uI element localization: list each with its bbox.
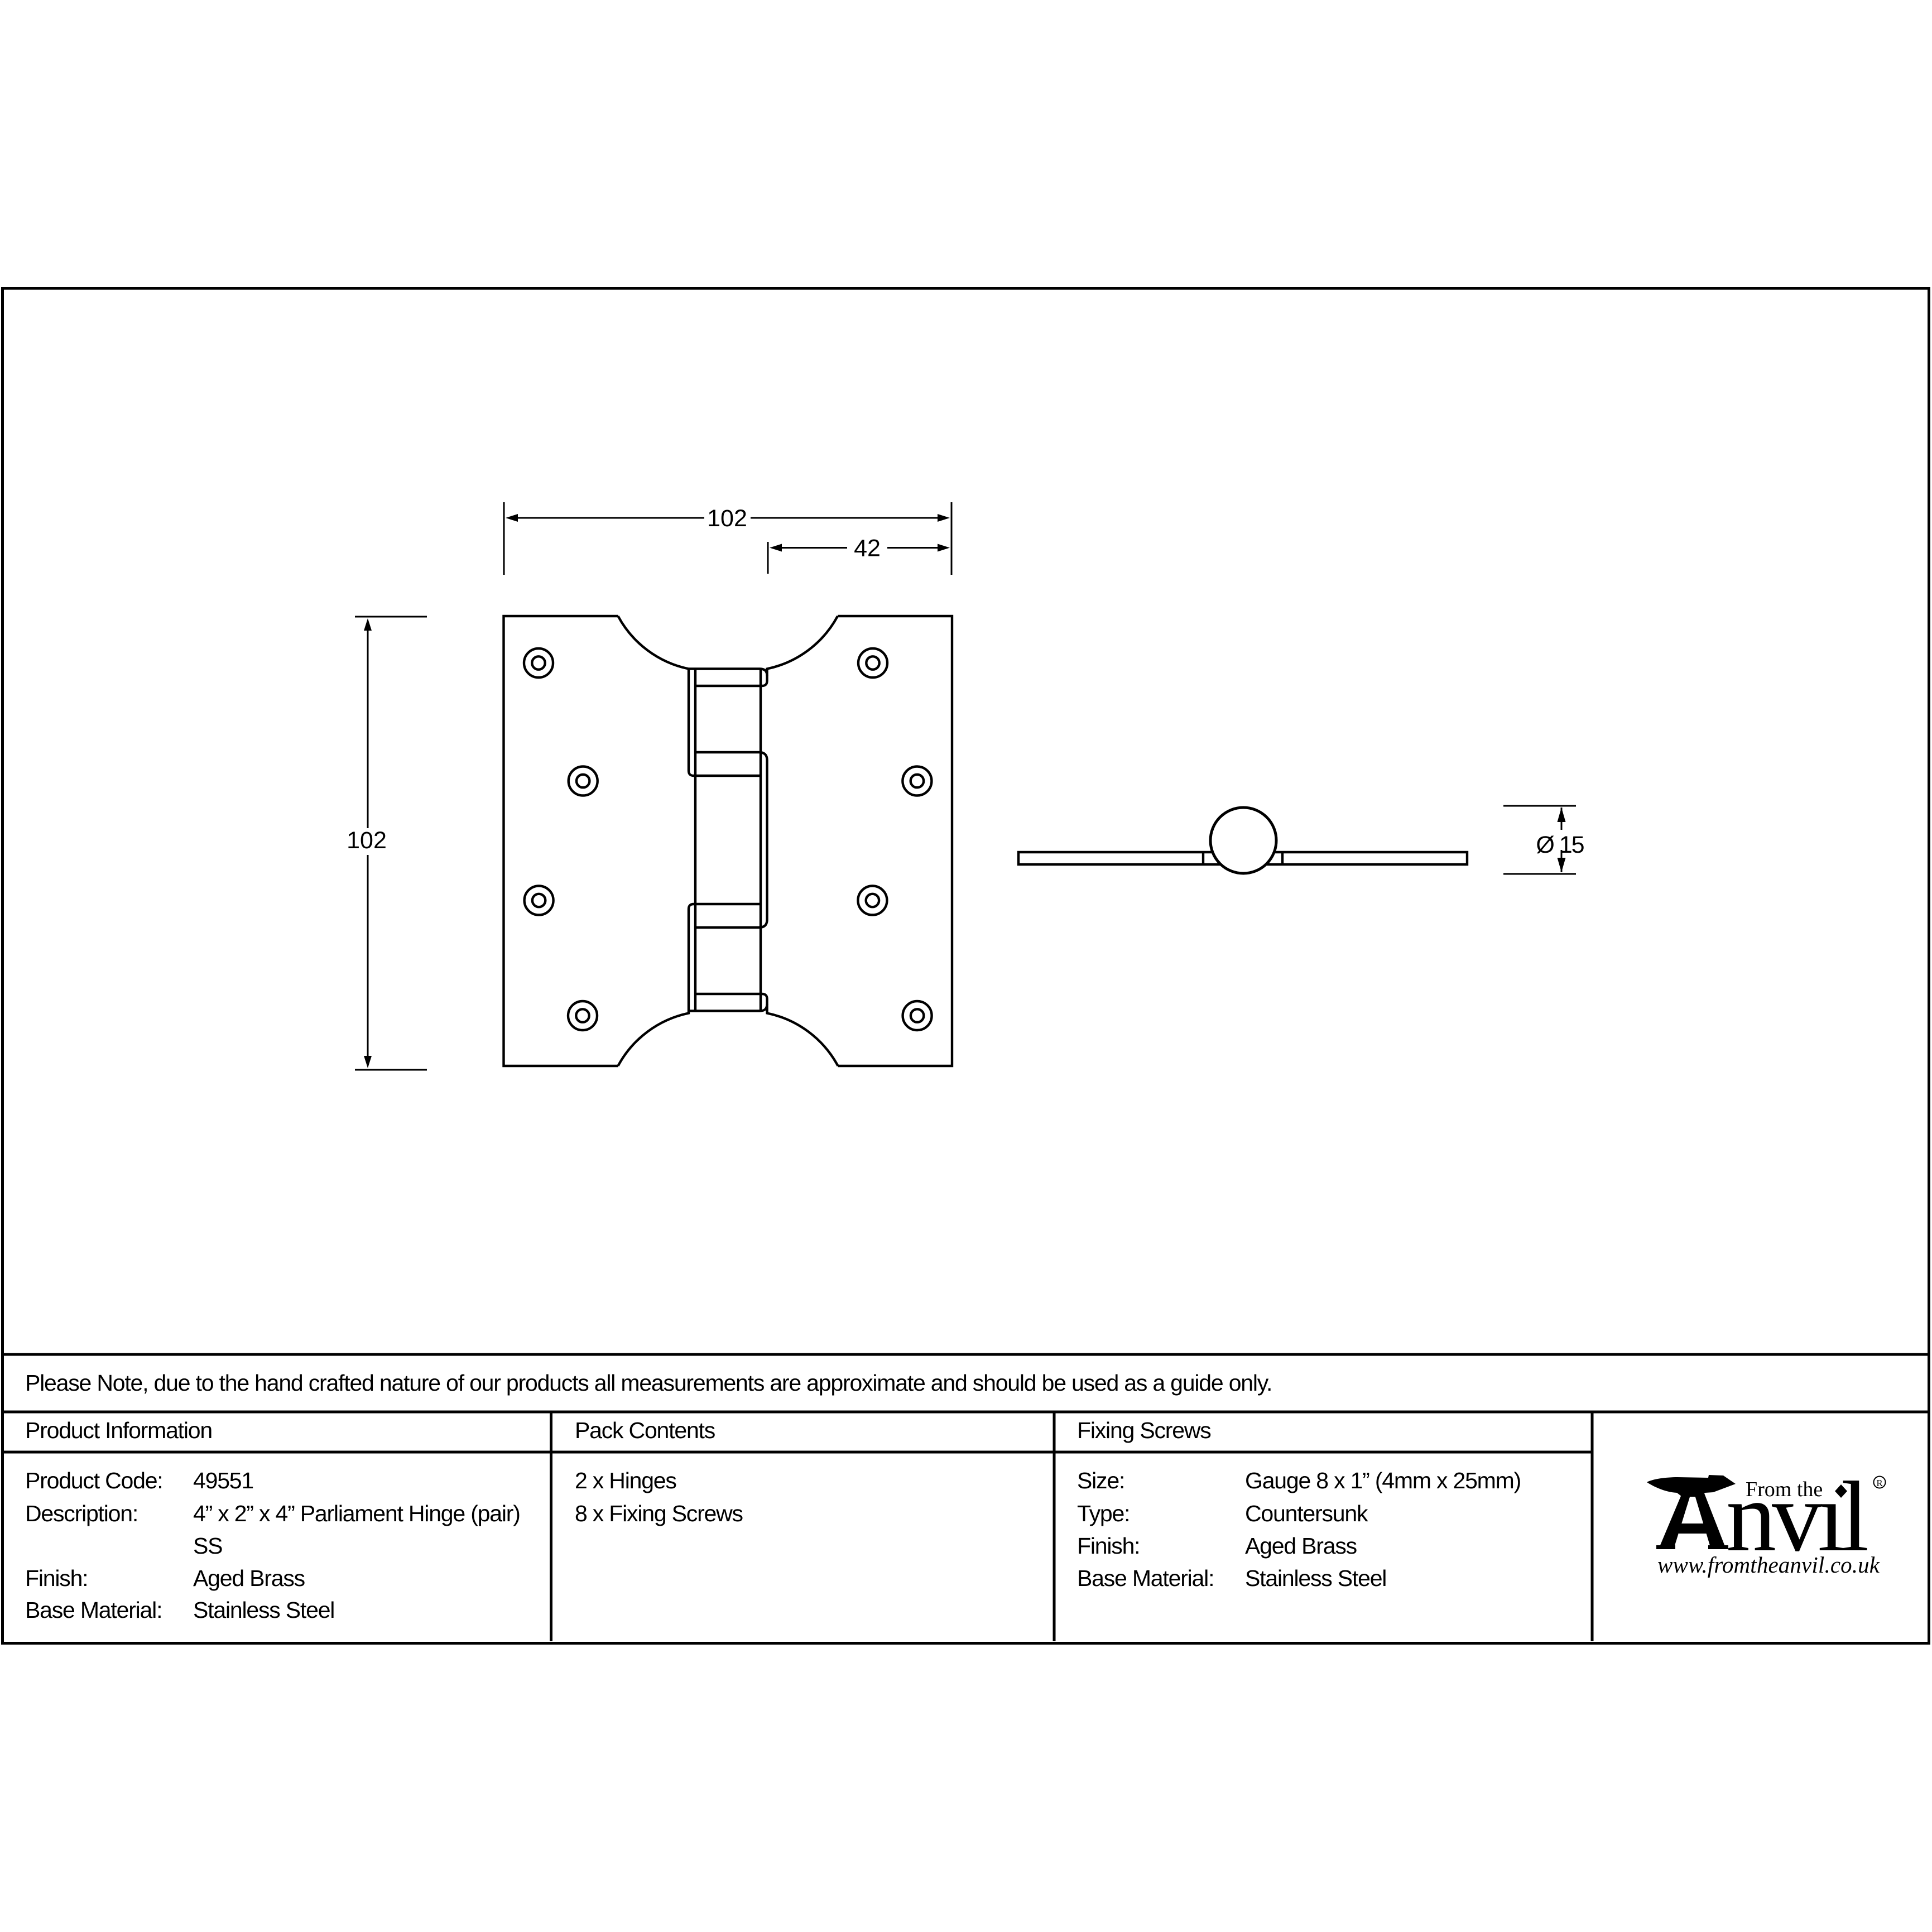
- svg-text:Description:: Description:: [25, 1501, 138, 1526]
- svg-text:Pack Contents: Pack Contents: [575, 1417, 715, 1443]
- svg-text:www.fromtheanvil.co.uk: www.fromtheanvil.co.uk: [1657, 1552, 1880, 1578]
- svg-text:Base Material:: Base Material:: [25, 1597, 162, 1623]
- svg-text:Finish:: Finish:: [1077, 1533, 1140, 1559]
- svg-text:SS: SS: [193, 1533, 222, 1559]
- svg-text:Product Code:: Product Code:: [25, 1468, 163, 1493]
- svg-text:Countersunk: Countersunk: [1245, 1501, 1368, 1526]
- svg-text:49551: 49551: [193, 1468, 253, 1493]
- svg-text:102: 102: [707, 505, 747, 532]
- svg-text:Gauge 8 x 1” (4mm x 25mm): Gauge 8 x 1” (4mm x 25mm): [1245, 1468, 1521, 1493]
- svg-text:Stainless Steel: Stainless Steel: [193, 1597, 334, 1623]
- svg-text:8 x Fixing Screws: 8 x Fixing Screws: [575, 1501, 743, 1526]
- svg-text:42: 42: [854, 535, 881, 562]
- svg-text:Ø 15: Ø 15: [1536, 832, 1584, 858]
- svg-text:Aged Brass: Aged Brass: [1245, 1533, 1357, 1559]
- svg-text:2 x Hinges: 2 x Hinges: [575, 1468, 676, 1493]
- svg-text:Stainless Steel: Stainless Steel: [1245, 1565, 1386, 1591]
- svg-text:Product Information: Product Information: [25, 1417, 212, 1443]
- svg-text:Fixing Screws: Fixing Screws: [1077, 1417, 1211, 1443]
- svg-text:Aged Brass: Aged Brass: [193, 1565, 305, 1591]
- svg-text:Finish:: Finish:: [25, 1565, 88, 1591]
- svg-text:4” x 2” x 4” Parliament Hinge: 4” x 2” x 4” Parliament Hinge (pair): [193, 1501, 520, 1526]
- svg-text:102: 102: [347, 827, 387, 854]
- svg-text:Type:: Type:: [1077, 1501, 1130, 1526]
- svg-text:Size:: Size:: [1077, 1468, 1124, 1493]
- svg-text:R: R: [1876, 1478, 1883, 1488]
- svg-text:Base Material:: Base Material:: [1077, 1565, 1214, 1591]
- svg-text:Please Note, due to the hand c: Please Note, due to the hand crafted nat…: [25, 1370, 1272, 1396]
